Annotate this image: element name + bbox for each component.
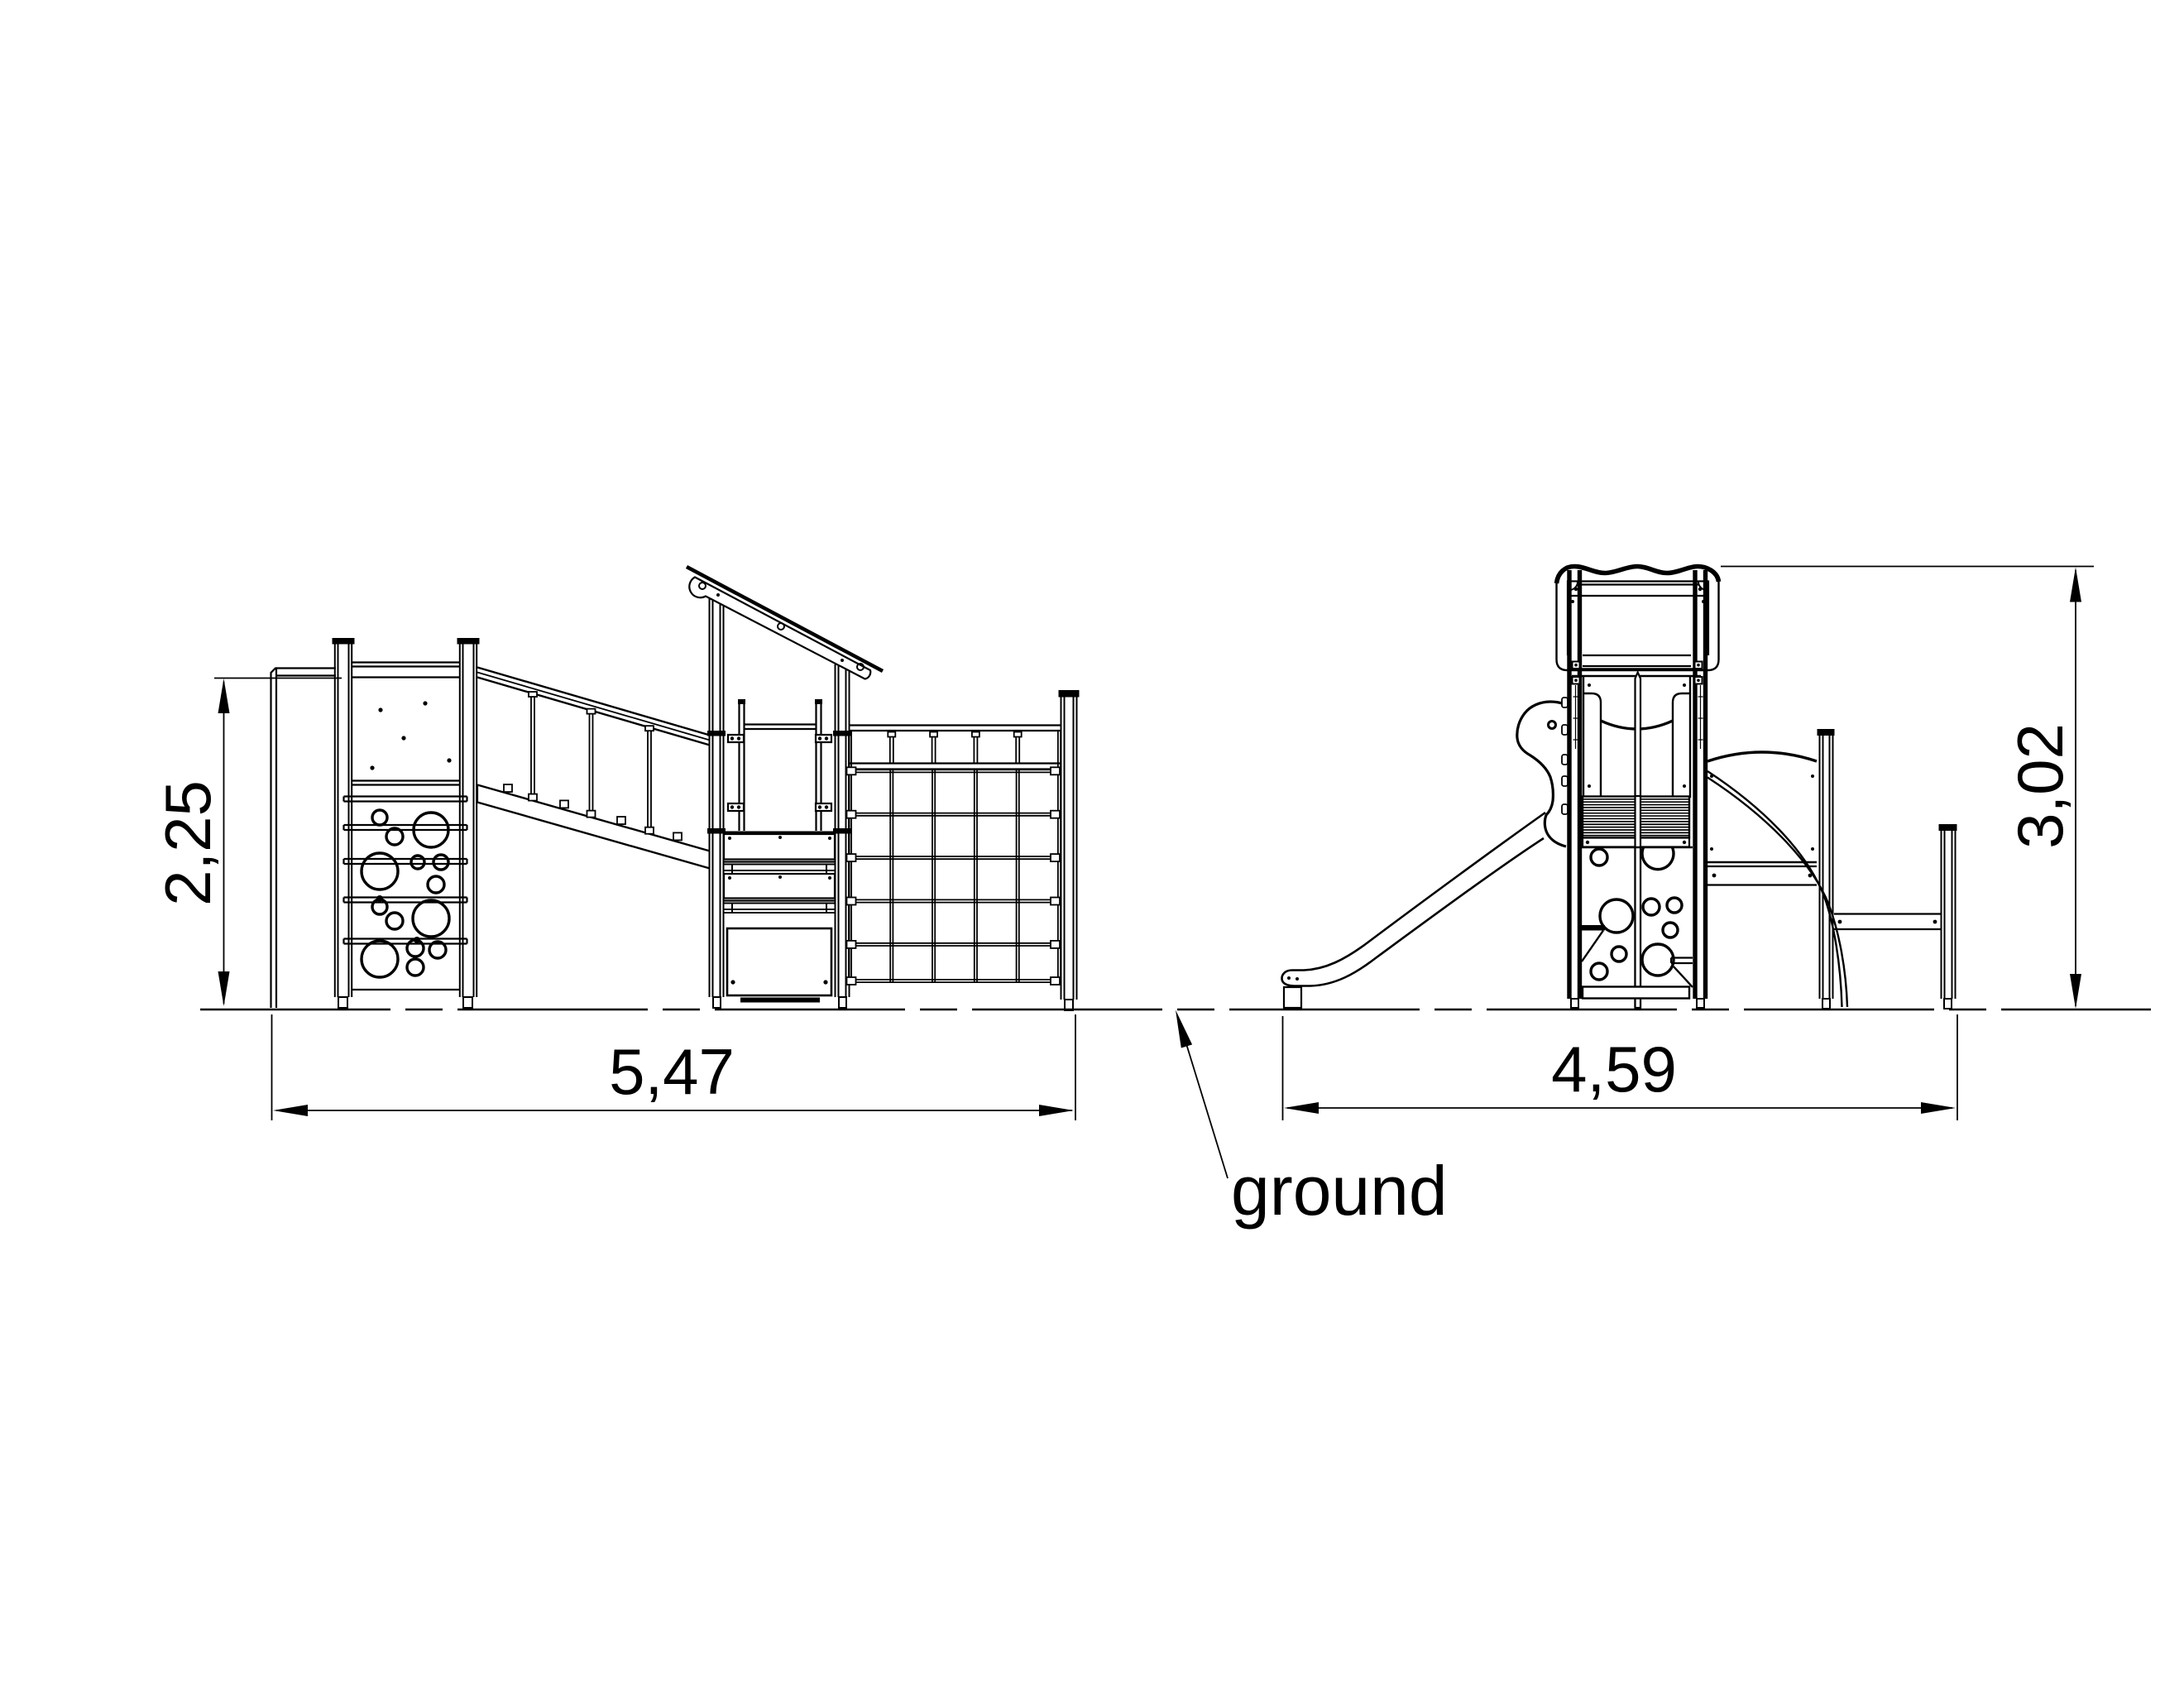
svg-text:4,59: 4,59 (1551, 1033, 1677, 1105)
svg-text:3,02: 3,02 (2004, 723, 2076, 849)
svg-text:5,47: 5,47 (609, 1035, 735, 1108)
svg-text:2,25: 2,25 (151, 780, 224, 906)
svg-text:ground: ground (1231, 1152, 1448, 1230)
